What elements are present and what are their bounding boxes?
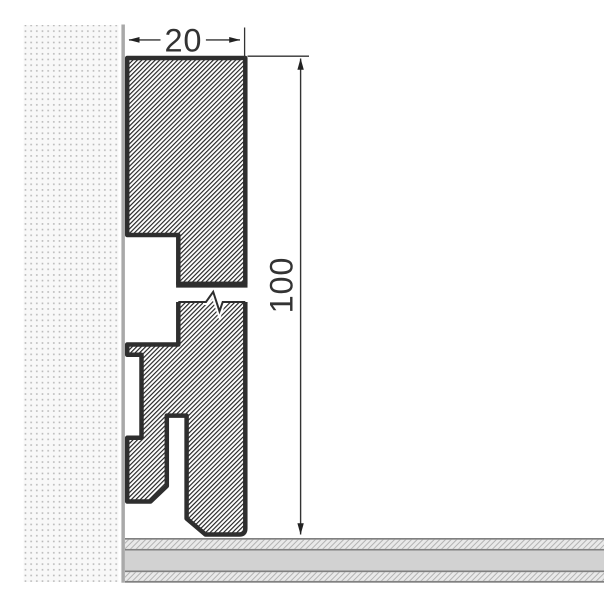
svg-text:100: 100 [264,257,300,314]
svg-text:20: 20 [165,22,203,58]
